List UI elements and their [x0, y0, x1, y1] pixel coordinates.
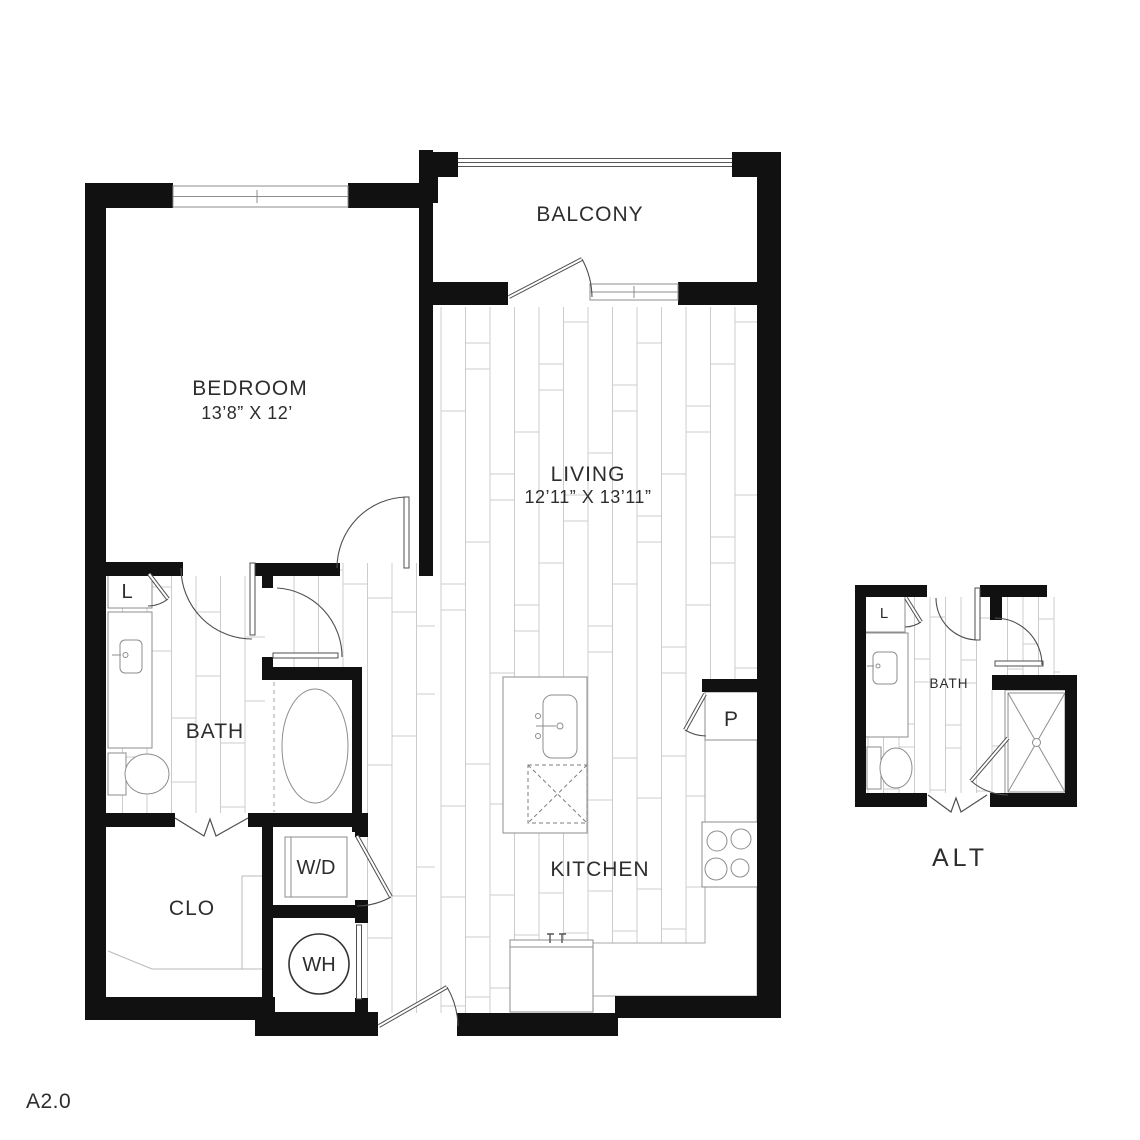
label-pantry: P [724, 708, 738, 731]
toilet [108, 753, 169, 795]
alt-toilet [867, 747, 912, 789]
floor-plan-sheet: BALCONY BEDROOM 13’8” X 12’ LIVING 12’11… [0, 0, 1140, 1140]
labels: BALCONY BEDROOM 13’8” X 12’ LIVING 12’11… [26, 203, 988, 1113]
range-stove [702, 822, 758, 887]
balcony-door [509, 259, 592, 297]
living-balcony-window [590, 284, 678, 300]
washer-dryer-door [357, 836, 391, 906]
room-dims-living: 12’11” X 13’11” [525, 487, 652, 507]
walls [85, 150, 1077, 1036]
room-label-bath: BATH [186, 720, 244, 743]
kitchen-island [503, 677, 587, 833]
closet-bifold-door [175, 818, 248, 836]
room-label-kitchen: KITCHEN [550, 858, 649, 881]
alt-label-bath: BATH [929, 676, 968, 691]
bath-door-from-bedroom [181, 563, 255, 639]
room-dims-bedroom: 13’8” X 12’ [201, 403, 293, 423]
room-label-bedroom: BEDROOM [192, 377, 308, 400]
alt-bath-door [936, 588, 980, 640]
bath-vanity-sink [108, 612, 152, 748]
alt-shower [1005, 690, 1068, 795]
alt-caption: ALT [932, 844, 988, 872]
label-washer-dryer: W/D [297, 857, 336, 879]
floor-plan: BALCONY BEDROOM 13’8” X 12’ LIVING 12’11… [0, 0, 1140, 1140]
room-label-living: LIVING [551, 463, 626, 486]
label-water-heater: WH [302, 954, 335, 976]
room-label-balcony: BALCONY [536, 203, 643, 226]
bathtub [274, 682, 348, 812]
water-heater-door [357, 925, 362, 999]
alt-linen-door [905, 598, 921, 627]
alt-vanity-sink [865, 633, 908, 737]
bedroom-window [173, 186, 348, 207]
balcony-railing [458, 159, 732, 167]
bedroom-door [337, 497, 409, 568]
refrigerator [510, 934, 593, 1012]
windows [173, 159, 732, 301]
room-label-closet: CLO [169, 897, 215, 920]
bath-door-from-hall [273, 588, 342, 658]
label-linen: L [121, 581, 132, 603]
alt-label-linen: L [880, 605, 888, 622]
alt-bifold-door [928, 795, 987, 812]
sheet-label: A2.0 [26, 1090, 71, 1113]
alt-shower-room-door [995, 618, 1043, 666]
pantry-door [685, 694, 706, 736]
closet-shelf [108, 876, 262, 969]
